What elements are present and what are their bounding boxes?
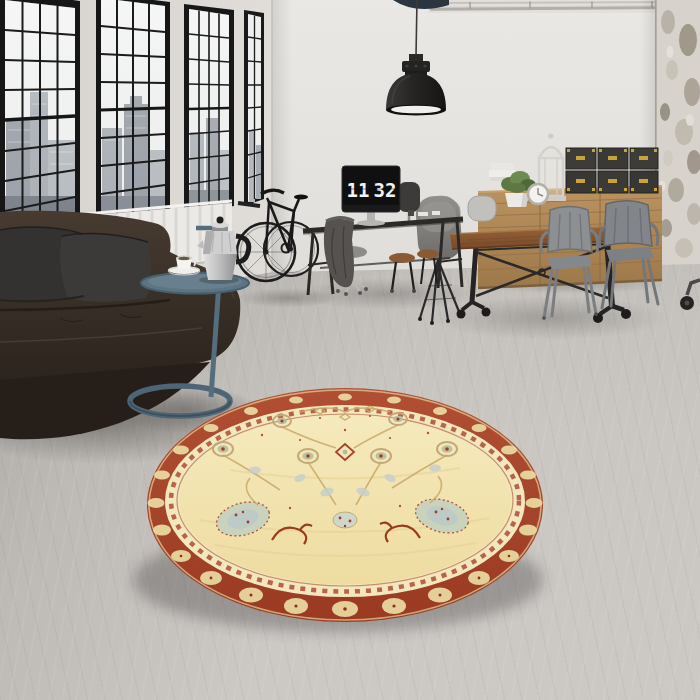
round-oriental-rug [0,0,700,700]
loft-room-photo: 11 32 [0,0,700,700]
rug-field [179,416,511,585]
